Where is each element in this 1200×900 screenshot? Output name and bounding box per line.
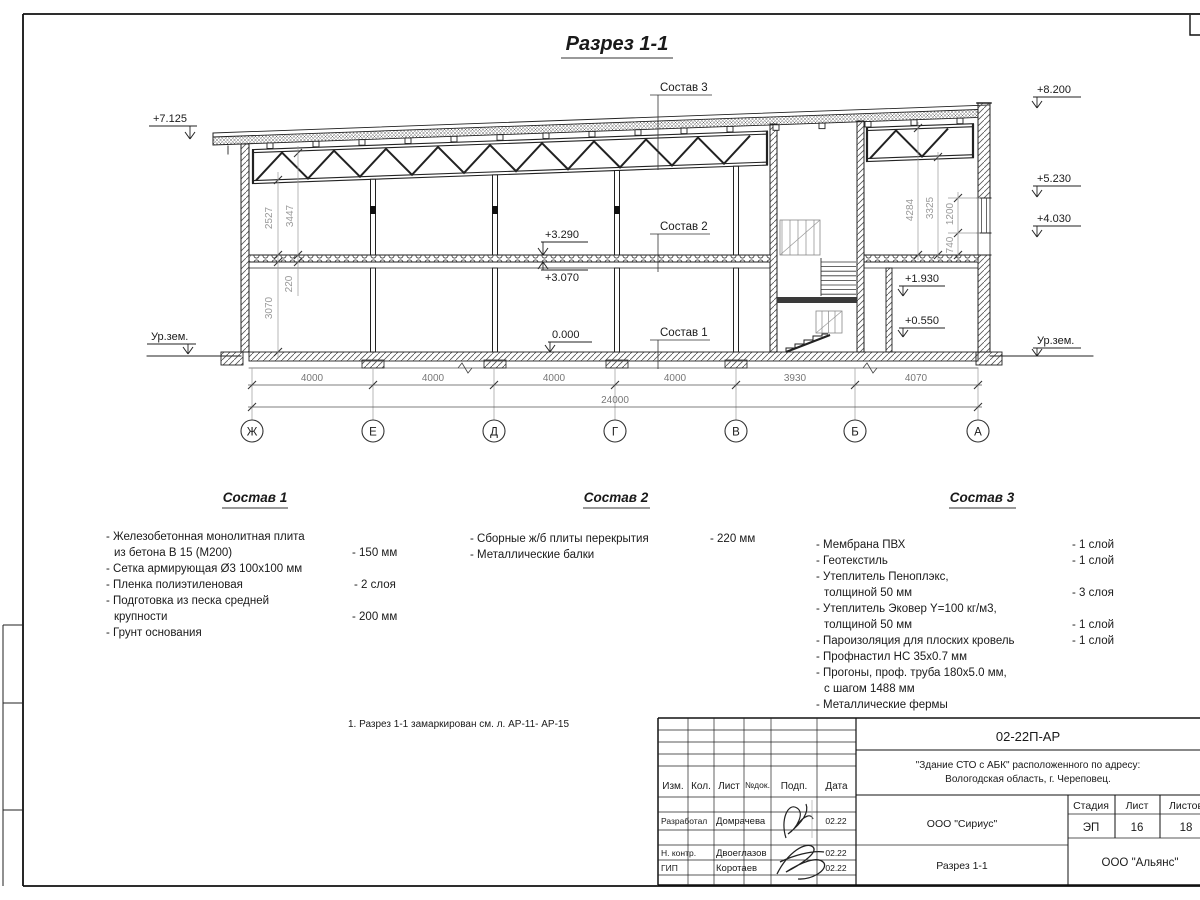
spec2-title: Состав 2 — [584, 490, 649, 505]
tb-project-line2: Вологодская область, г. Череповец. — [945, 773, 1111, 785]
spec1-value: - 200 мм — [352, 611, 397, 623]
stair-shaft-wall-left — [770, 124, 777, 352]
dim-3325: 3325 — [925, 196, 936, 219]
signature-2 — [777, 845, 825, 879]
drawing-sheet: Разрез 1-1 — [0, 0, 1200, 900]
dim-220: 220 — [284, 275, 295, 292]
stair-shaft-wall-right — [857, 121, 864, 352]
tb-sheet-label: Лист — [1126, 800, 1149, 812]
spec3-value: - 1 слой — [1072, 635, 1114, 647]
tb-role-2: Н. контр. — [661, 848, 696, 858]
spec3-title: Состав 3 — [950, 490, 1015, 505]
title-block: Изм. Кол. Лист №док. Подп. Дата Разработ… — [658, 718, 1200, 885]
tb-sheets-value: 18 — [1180, 822, 1193, 834]
spec1-line: - Железобетонная монолитная плита — [106, 531, 305, 543]
spec2-value: - 220 мм — [710, 533, 755, 545]
tb-doc-number: 02-22П-АР — [996, 729, 1060, 744]
elevation-entry: +0.550 — [905, 315, 939, 327]
signature-1 — [784, 804, 813, 838]
spec3-line: - Прогоны, проф. труба 180х5.0 мм, — [816, 667, 1007, 679]
spec3-line: - Мембрана ПВХ — [816, 539, 906, 551]
spec3-line: толщиной 50 мм — [824, 619, 912, 631]
spec3-line: - Геотекстиль — [816, 555, 888, 567]
sheet-note: 1. Разрез 1-1 замаркирован см. л. АР-11-… — [348, 719, 569, 730]
partition-wall — [886, 268, 892, 352]
floor-slab — [249, 255, 978, 268]
elevation-right-mid2: +4.030 — [1037, 213, 1071, 225]
ground-label-left: Ур.зем. — [151, 331, 188, 343]
spec1-value: - 150 мм — [352, 547, 397, 559]
left-margin-boxes — [3, 625, 23, 886]
dim-span-3: 4000 — [543, 373, 566, 384]
dim-span-4: 4000 — [664, 373, 687, 384]
axis-zh: Ж — [247, 427, 258, 439]
tb-sheet-value: 16 — [1131, 822, 1144, 834]
spec2-line: - Металлические балки — [470, 549, 594, 561]
spec1-line: - Пленка полиэтиленовая — [106, 579, 243, 591]
spec3-line: толщиной 50 мм — [824, 587, 912, 599]
left-wall — [241, 144, 249, 352]
spec1-line: крупности — [114, 611, 167, 623]
tb-role-3: ГИП — [661, 863, 678, 873]
spec3-value: - 3 слоя — [1072, 587, 1114, 599]
foundation-right — [976, 352, 1002, 365]
section-drawing-svg: Разрез 1-1 — [0, 0, 1200, 900]
spec3-line: - Утеплитель Пеноплэкс, — [816, 571, 949, 583]
axis-g: Г — [612, 427, 619, 439]
spec1-title: Состав 1 — [223, 490, 287, 505]
elevation-left-top: +7.125 — [153, 113, 187, 125]
tb-date-2: 02.22 — [825, 848, 847, 858]
axis-v: В — [732, 427, 740, 439]
elevation-slab-bottom: +3.070 — [545, 272, 579, 284]
tb-header-data: Дата — [825, 781, 848, 792]
dim-740: 740 — [945, 236, 956, 253]
spec3-line: - Пароизоляция для плоских кровель — [816, 635, 1015, 647]
spec1-value: - 2 слоя — [354, 579, 396, 591]
axis-e: Е — [369, 427, 377, 439]
tb-header-list: Лист — [718, 781, 740, 792]
elevation-zero: 0.000 — [552, 329, 580, 341]
spec3-line: - Металлические фермы — [816, 699, 948, 711]
tb-stage-label: Стадия — [1073, 800, 1109, 812]
leader-sostav3: Состав 3 — [660, 82, 708, 94]
axis-d: Д — [490, 427, 498, 439]
spec1-line: - Грунт основания — [106, 627, 202, 639]
elevation-right-mid1: +5.230 — [1037, 173, 1071, 185]
dim-1200: 1200 — [945, 202, 956, 225]
spec1-line: - Подготовка из песка средней — [106, 595, 269, 607]
dim-3070: 3070 — [264, 296, 275, 319]
tb-stage-value: ЭП — [1083, 822, 1100, 834]
axis-bubbles: Ж Е Д Г В Б А — [241, 420, 989, 442]
tb-sheets-label: Листов — [1169, 800, 1200, 812]
spec3-value: - 1 слой — [1072, 539, 1114, 551]
dim-span-2: 4000 — [422, 373, 445, 384]
tb-date-3: 02.22 — [825, 863, 847, 873]
dim-span-5: 3930 — [784, 373, 807, 384]
spec3-line: - Утеплитель Эковер Y=100 кг/м3, — [816, 603, 997, 615]
corner-stamp-box — [1190, 15, 1200, 35]
ground-label-right: Ур.зем. — [1037, 335, 1074, 347]
tb-header-ndok: №док. — [745, 780, 770, 790]
spec3-value: - 1 слой — [1072, 555, 1114, 567]
tb-role-1: Разработал — [661, 816, 707, 826]
tb-header-podp: Подп. — [781, 781, 808, 792]
dim-3447: 3447 — [285, 204, 296, 227]
tb-drawing-name: Разрез 1-1 — [936, 860, 988, 872]
axis-a: А — [974, 427, 982, 439]
tb-company: ООО "Альянс" — [1102, 857, 1179, 869]
spec3-line: с шагом 1488 мм — [824, 683, 915, 695]
spec3-value: - 1 слой — [1072, 619, 1114, 631]
spec2-line: - Сборные ж/б плиты перекрытия — [470, 533, 649, 545]
right-wall-window — [977, 198, 991, 255]
spec-lists: Состав 1 - Железобетонная монолитная пли… — [106, 490, 1114, 711]
spec1-line: - Сетка армирующая Ø3 100х100 мм — [106, 563, 302, 575]
tb-org: ООО "Сириус" — [927, 818, 998, 830]
dim-total: 24000 — [601, 395, 629, 406]
foundation-left — [221, 352, 243, 365]
tb-project-line1: "Здание СТО с АБК" расположенного по адр… — [916, 760, 1141, 771]
spec1-line: из бетона В 15 (М200) — [114, 547, 232, 559]
dim-2527: 2527 — [264, 206, 275, 229]
spec3-line: - Профнастил НС 35х0.7 мм — [816, 651, 967, 663]
page-title: Разрез 1-1 — [566, 33, 669, 55]
sheet-frame — [3, 14, 1200, 886]
tb-header-kol: Кол. — [691, 781, 711, 792]
elevation-right-top: +8.200 — [1037, 84, 1071, 96]
axis-b: Б — [851, 427, 859, 439]
dim-span-6: 4070 — [905, 373, 928, 384]
tb-name-1: Домрачева — [716, 816, 766, 827]
tb-name-2: Двоеглазов — [716, 848, 767, 859]
elevation-slab-top: +3.290 — [545, 229, 579, 241]
dim-span-1: 4000 — [301, 373, 324, 384]
tb-date-1: 02.22 — [825, 816, 847, 826]
elevation-landing: +1.930 — [905, 273, 939, 285]
leader-sostav1: Состав 1 — [660, 327, 708, 339]
tb-name-3: Коротаев — [716, 863, 757, 874]
tb-header-izm: Изм. — [662, 781, 683, 792]
leader-sostav2: Состав 2 — [660, 221, 708, 233]
dim-4284: 4284 — [905, 198, 916, 221]
stair-landing — [777, 297, 857, 303]
